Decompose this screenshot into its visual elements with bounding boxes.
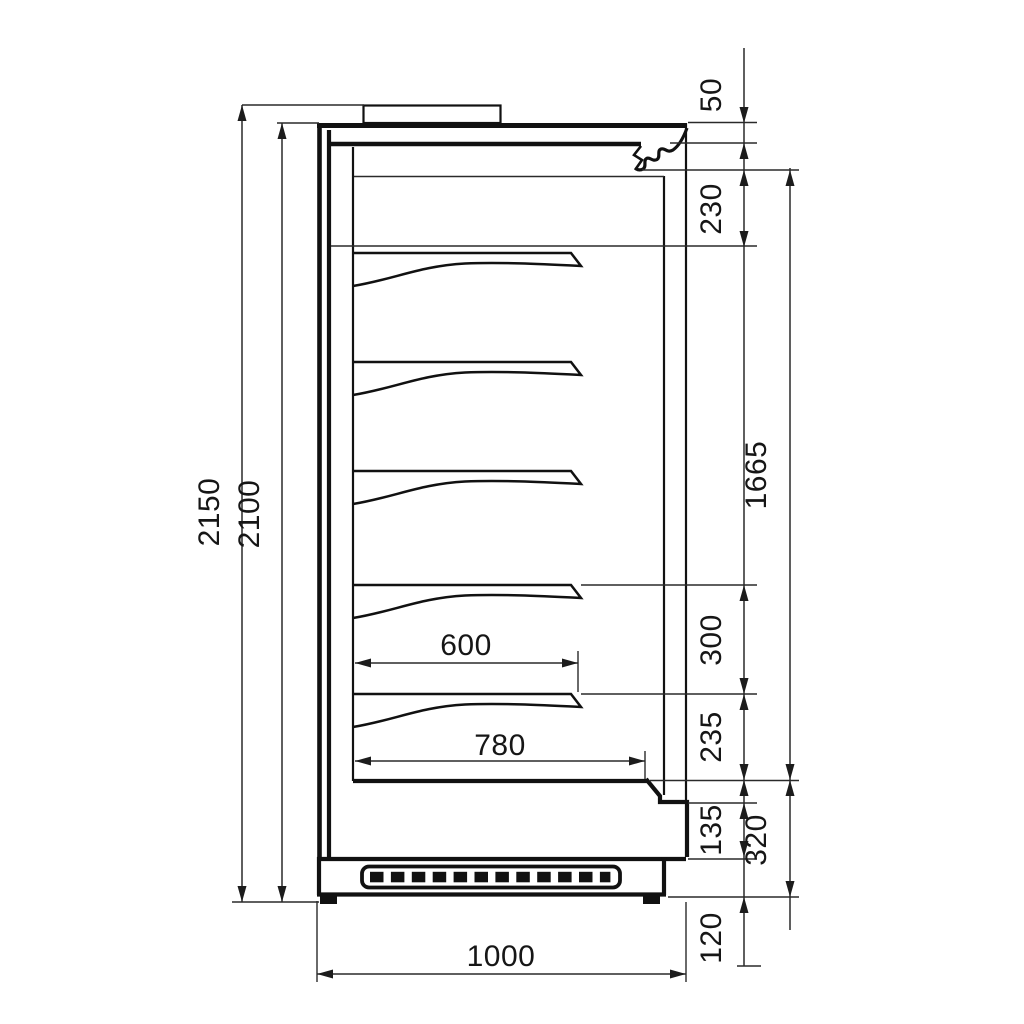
dimension-780: 780 bbox=[355, 729, 645, 766]
dimension-label-1000: 1000 bbox=[467, 940, 536, 973]
shelf bbox=[353, 253, 581, 286]
canopy-duct-zigzag bbox=[634, 146, 642, 170]
canopy-fascia-profile bbox=[637, 128, 688, 170]
base-plinth bbox=[317, 857, 686, 904]
foot-left bbox=[320, 897, 337, 905]
dimension-label-50: 50 bbox=[695, 78, 728, 112]
foot-right bbox=[643, 897, 660, 905]
shelf bbox=[353, 585, 581, 618]
dimension-label-1665: 1665 bbox=[740, 441, 773, 510]
dimension-label-230: 230 bbox=[695, 183, 728, 235]
dimension-2100: 2100 bbox=[233, 123, 287, 902]
shelf bbox=[353, 471, 581, 504]
shelf bbox=[353, 362, 581, 395]
dimension-label-320: 320 bbox=[740, 814, 773, 866]
front-bottom-step bbox=[646, 779, 687, 857]
dimension-label-235: 235 bbox=[695, 711, 728, 763]
dimension-1000: 1000 bbox=[317, 940, 686, 979]
dimension-chain-right-outer: 1665 320 bbox=[740, 168, 795, 930]
dimension-label-2150: 2150 bbox=[193, 478, 226, 547]
dimension-600: 600 bbox=[355, 629, 578, 668]
dimension-label-300: 300 bbox=[695, 614, 728, 666]
dimension-label-600: 600 bbox=[440, 629, 492, 662]
bottom-shelf bbox=[353, 694, 581, 727]
dimension-label-780: 780 bbox=[474, 729, 526, 762]
cabinet-structure bbox=[317, 106, 757, 905]
top-box bbox=[364, 106, 501, 124]
dimension-label-120: 120 bbox=[695, 912, 728, 964]
dimension-label-135: 135 bbox=[695, 804, 728, 856]
ventilation-grille bbox=[362, 867, 620, 888]
dimension-label-2100: 2100 bbox=[233, 480, 266, 549]
technical-drawing: 2150 2100 50 230 300 235 135 120 bbox=[0, 0, 1024, 1024]
cabinet-section-svg: 2150 2100 50 230 300 235 135 120 bbox=[0, 0, 1024, 1024]
grille-slots bbox=[370, 872, 610, 883]
